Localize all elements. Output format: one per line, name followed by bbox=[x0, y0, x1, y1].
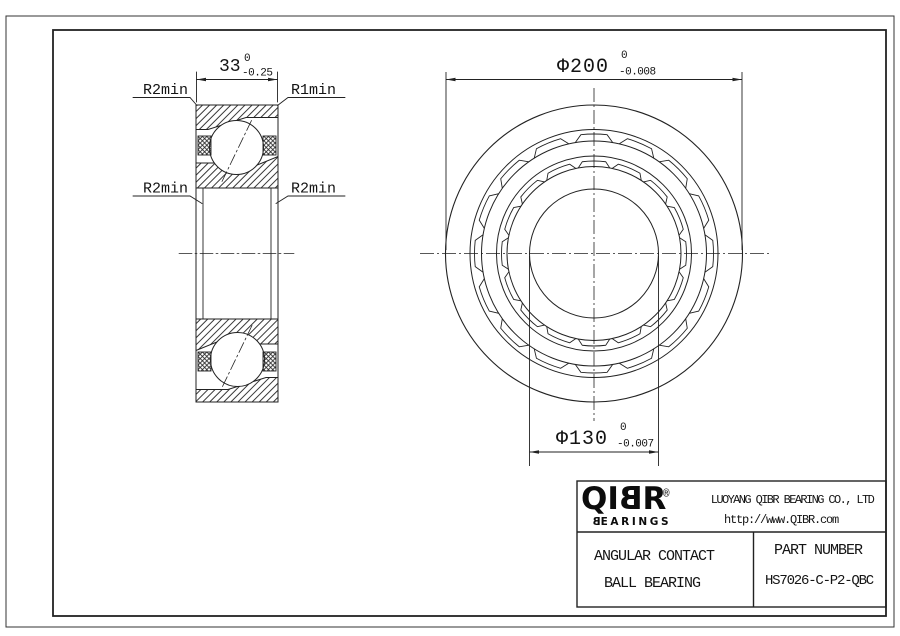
radius-label-top-right: R1min bbox=[291, 82, 336, 99]
qibr-logo: QIBR BEARINGS bbox=[581, 484, 671, 528]
product-name-line1: ANGULAR CONTACT bbox=[594, 548, 715, 565]
outer-dim-tol-lower: -0.008 bbox=[619, 67, 656, 79]
front-view: Φ200 0 -0.008 Φ130 0 -0.007 bbox=[420, 50, 772, 466]
ball-top bbox=[210, 121, 264, 175]
bore-dim-tol-lower: -0.007 bbox=[617, 439, 654, 451]
bore-dim-value: Φ130 bbox=[556, 428, 608, 451]
part-number-label: PART NUMBER bbox=[774, 542, 863, 559]
sheet-border bbox=[6, 16, 894, 627]
radius-label-mid-left: R2min bbox=[143, 181, 188, 198]
radius-label-mid-right: R2min bbox=[291, 181, 336, 198]
outer-dim-tol-upper: 0 bbox=[621, 50, 627, 62]
company-name: LUOYANG QIBR BEARING CO., LTD bbox=[711, 493, 875, 507]
part-number-value: HS7026-C-P2-QBC bbox=[765, 573, 874, 589]
drawing-canvas: 33 0 -0.25 R2min R1min R2min R2min bbox=[0, 0, 900, 636]
bore-dim-tol-upper: 0 bbox=[620, 422, 626, 434]
radius-label-top-left: R2min bbox=[143, 82, 188, 99]
section-bottom-half bbox=[196, 319, 278, 402]
cage-section-top-right bbox=[263, 136, 276, 155]
logo-wordmark: QIBR bbox=[581, 484, 671, 515]
cage-section-bottom-right bbox=[263, 352, 276, 371]
company-website: http://www.QIBR.com bbox=[724, 513, 839, 527]
width-dim-tol-lower: -0.25 bbox=[242, 68, 273, 80]
cross-section-view: 33 0 -0.25 R2min R1min R2min R2min bbox=[133, 53, 345, 402]
drawing-sheet: 33 0 -0.25 R2min R1min R2min R2min bbox=[0, 0, 900, 636]
width-dim-tol-upper: 0 bbox=[244, 53, 250, 65]
cage-section-bottom-left bbox=[198, 352, 211, 371]
logo-sub-bearings: BEARINGS bbox=[590, 517, 671, 528]
outer-dim-value: Φ200 bbox=[557, 56, 609, 79]
width-dim-value: 33 bbox=[219, 57, 241, 77]
cage-section-top-left bbox=[198, 136, 211, 155]
section-top-half bbox=[196, 105, 278, 188]
ball-bottom bbox=[211, 333, 265, 387]
product-name-line2: BALL BEARING bbox=[604, 575, 701, 592]
